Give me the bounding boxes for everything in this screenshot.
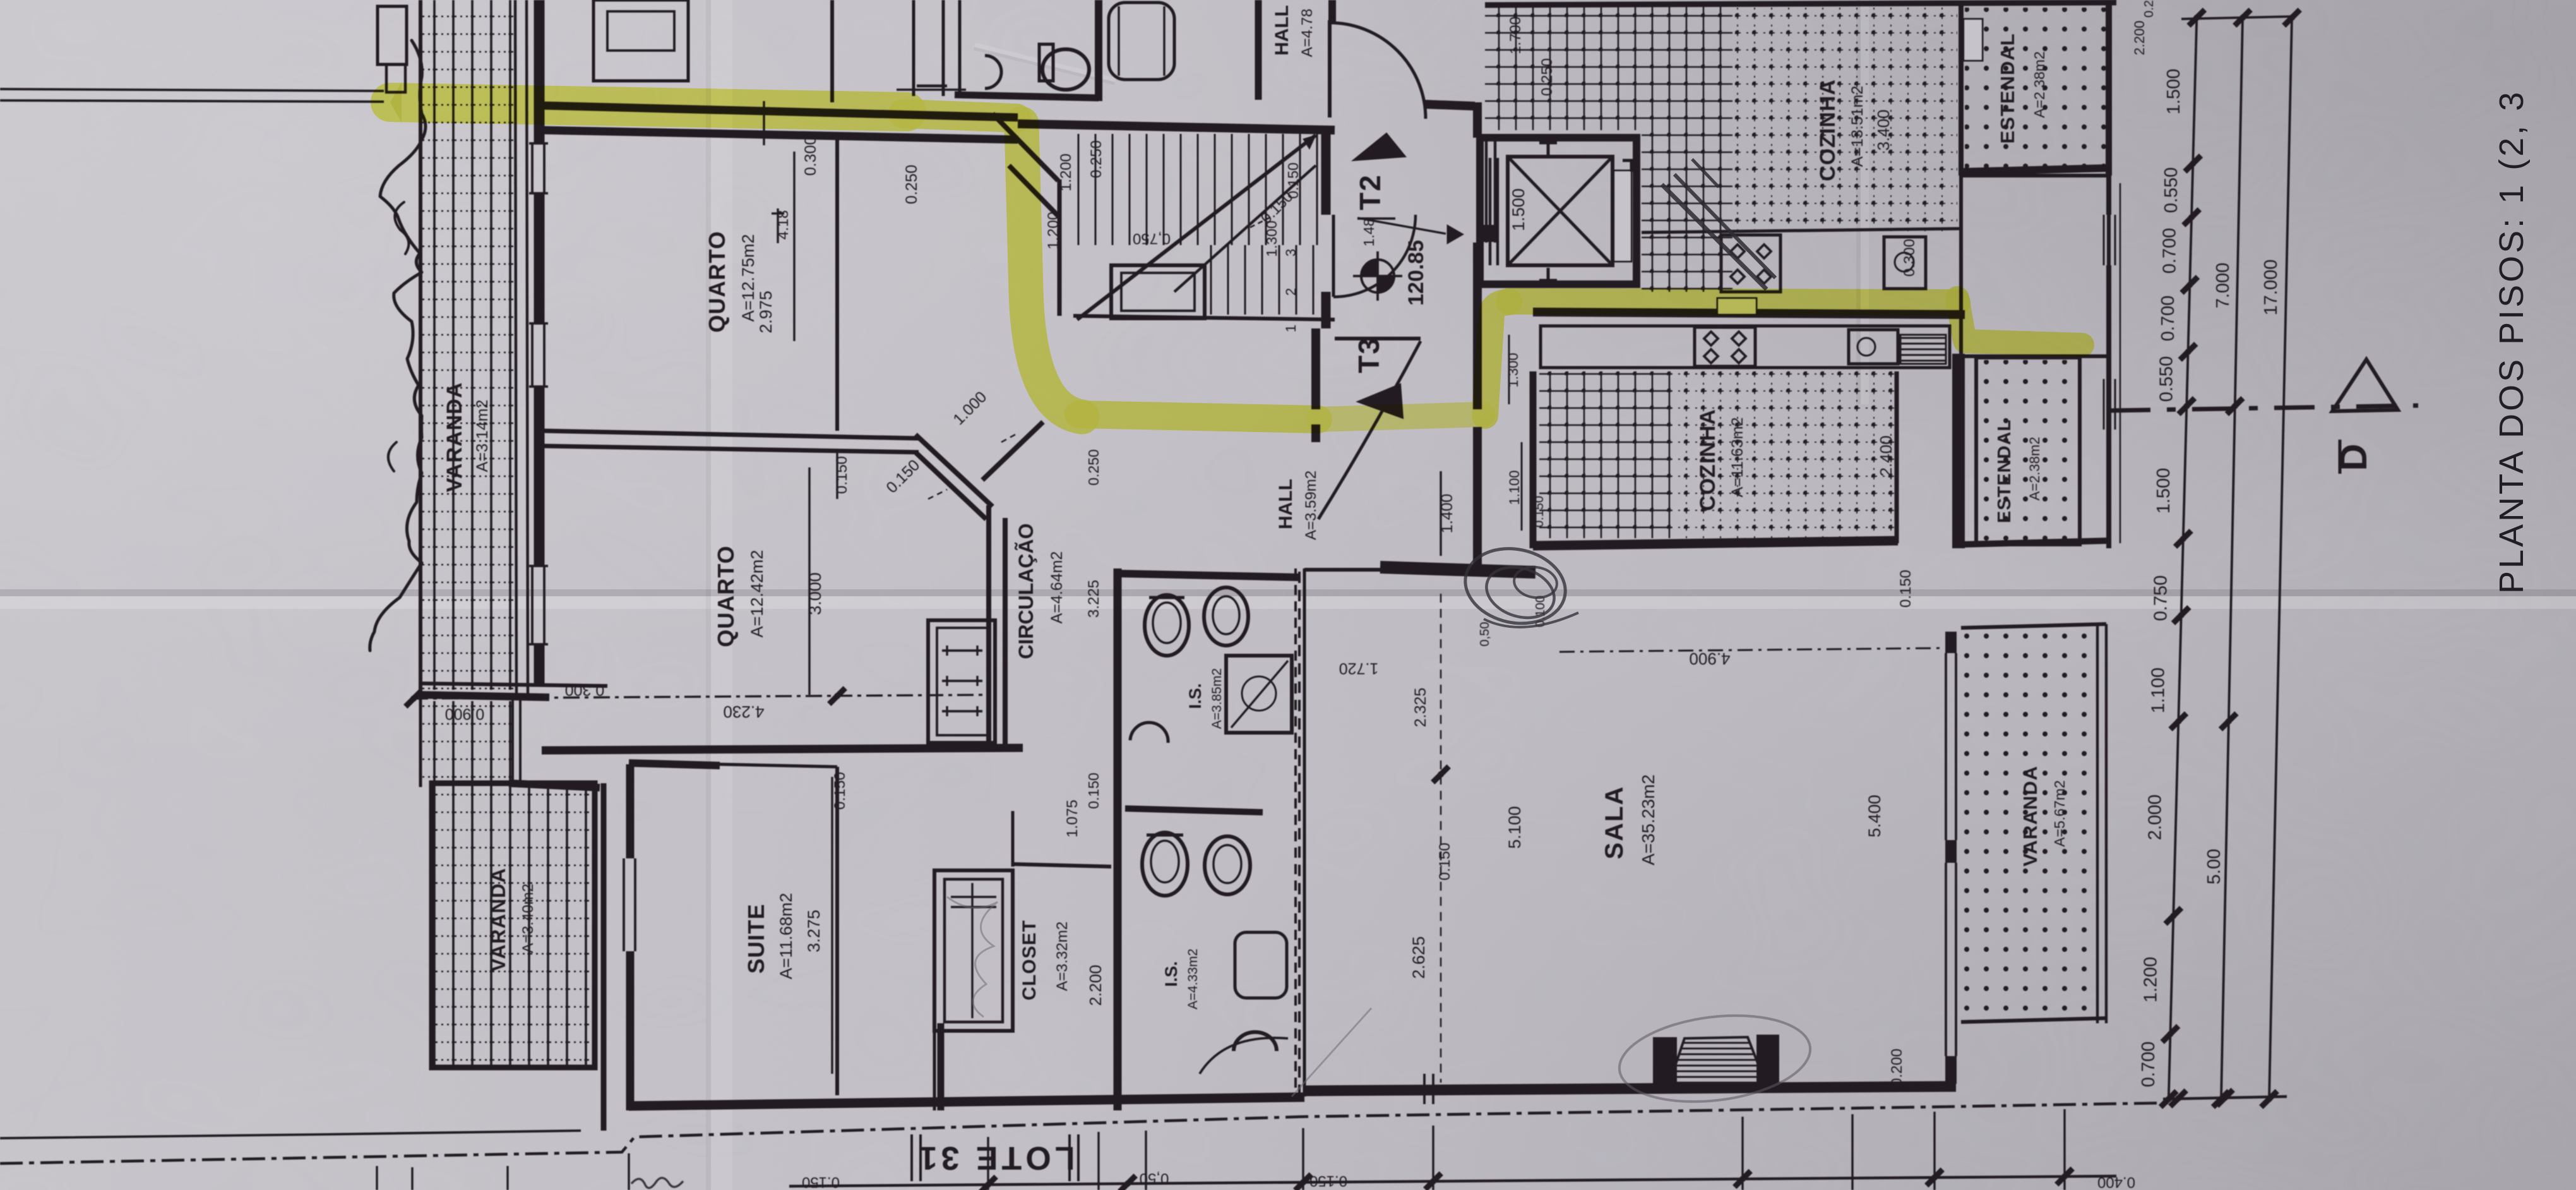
svg-text:A=11.63m2: A=11.63m2 bbox=[1729, 418, 1746, 498]
svg-text:A=13.51m2: A=13.51m2 bbox=[1849, 86, 1866, 167]
svg-text:0.250: 0.250 bbox=[1539, 58, 1556, 96]
svg-text:1.200: 1.200 bbox=[1058, 153, 1075, 191]
svg-text:PLANTA DOS PISOS: 1 (2, 3: PLANTA DOS PISOS: 1 (2, 3 bbox=[2493, 90, 2531, 594]
svg-text:A=4.78: A=4.78 bbox=[1299, 9, 1316, 57]
svg-text:0.300: 0.300 bbox=[565, 681, 605, 699]
svg-text:0.700: 0.700 bbox=[2138, 1042, 2159, 1088]
svg-text:QUARTO: QUARTO bbox=[713, 545, 739, 647]
svg-text:HALL: HALL bbox=[1275, 479, 1296, 529]
svg-text:2: 2 bbox=[1283, 288, 1299, 296]
svg-text:0.200: 0.200 bbox=[1888, 1049, 1905, 1086]
svg-text:2.325: 2.325 bbox=[1412, 688, 1429, 728]
svg-text:0.150: 0.150 bbox=[833, 456, 850, 494]
svg-text:2.975: 2.975 bbox=[756, 291, 775, 334]
svg-text:1.700: 1.700 bbox=[1507, 16, 1524, 54]
svg-text:2.625: 2.625 bbox=[1409, 936, 1428, 979]
svg-text:4.900: 4.900 bbox=[1689, 649, 1730, 668]
svg-text:0,750: 0,750 bbox=[1133, 230, 1171, 247]
svg-text:I.S.: I.S. bbox=[1162, 961, 1181, 987]
svg-text:1.200: 1.200 bbox=[1045, 212, 1062, 249]
svg-text:1.100: 1.100 bbox=[1506, 470, 1522, 505]
svg-text:1: 1 bbox=[1283, 325, 1299, 332]
svg-text:CIRCULAÇÃO: CIRCULAÇÃO bbox=[1015, 523, 1037, 659]
svg-text:ESTENDAL: ESTENDAL bbox=[1995, 419, 2015, 523]
svg-text:0.2: 0.2 bbox=[2142, 0, 2156, 18]
svg-text:0.700: 0.700 bbox=[2158, 296, 2178, 342]
svg-text:1.720: 1.720 bbox=[1339, 659, 1379, 677]
svg-text:3: 3 bbox=[1283, 249, 1299, 256]
svg-text:0.150: 0.150 bbox=[1897, 570, 1914, 608]
svg-text:I.S.: I.S. bbox=[1186, 683, 1205, 709]
svg-text:7.000: 7.000 bbox=[2213, 263, 2233, 309]
svg-text:1.300: 1.300 bbox=[1263, 220, 1280, 257]
svg-text:A=11.68m2: A=11.68m2 bbox=[777, 893, 796, 980]
svg-text:4.230: 4.230 bbox=[723, 702, 764, 721]
svg-text:0.900: 0.900 bbox=[445, 705, 485, 723]
svg-text:0.250: 0.250 bbox=[1085, 449, 1102, 486]
svg-text:ESTENDAL: ESTENDAL bbox=[1996, 33, 2018, 143]
svg-text:A=3.59m2: A=3.59m2 bbox=[1303, 471, 1320, 540]
svg-text:VARANDA: VARANDA bbox=[487, 868, 510, 972]
svg-text:0.300: 0.300 bbox=[1901, 239, 1918, 277]
svg-text:0.250: 0.250 bbox=[903, 165, 921, 205]
svg-text:A=3.32m2: A=3.32m2 bbox=[1054, 922, 1071, 991]
svg-text:0.550: 0.550 bbox=[2161, 167, 2181, 213]
svg-text:LOTE 31: LOTE 31 bbox=[915, 1139, 1075, 1176]
svg-text:QUARTO: QUARTO bbox=[704, 231, 730, 332]
svg-text:0.700: 0.700 bbox=[2160, 228, 2180, 274]
svg-text:COZINHA: COZINHA bbox=[1696, 409, 1720, 511]
svg-text:3.225: 3.225 bbox=[1085, 580, 1102, 618]
svg-text:A=35.23m2: A=35.23m2 bbox=[1638, 774, 1658, 865]
svg-text:A=3.14m2: A=3.14m2 bbox=[474, 400, 491, 472]
svg-text:1.075: 1.075 bbox=[1064, 800, 1081, 838]
svg-text:HALL: HALL bbox=[1272, 5, 1292, 56]
svg-text:A=5.67m2: A=5.67m2 bbox=[2051, 780, 2068, 847]
svg-text:CLOSET: CLOSET bbox=[1019, 920, 1040, 1001]
svg-text:A=4.64m2: A=4.64m2 bbox=[1048, 551, 1066, 624]
svg-text:3.275: 3.275 bbox=[804, 910, 823, 953]
svg-text:0.150: 0.150 bbox=[1436, 843, 1453, 880]
svg-text:0.400: 0.400 bbox=[2097, 1174, 2135, 1190]
svg-text:17.000: 17.000 bbox=[2261, 260, 2281, 316]
svg-text:5.100: 5.100 bbox=[1505, 806, 1524, 849]
svg-text:0.550: 0.550 bbox=[2156, 356, 2176, 402]
svg-text:0.150: 0.150 bbox=[1532, 496, 1546, 527]
svg-text:SALA: SALA bbox=[1601, 786, 1628, 860]
svg-text:2.200: 2.200 bbox=[1086, 965, 1105, 1006]
svg-text:3.400: 3.400 bbox=[1874, 109, 1893, 150]
svg-text:0,50: 0,50 bbox=[1478, 622, 1492, 647]
svg-text:1.500: 1.500 bbox=[2154, 468, 2174, 514]
svg-text:0.150: 0.150 bbox=[1309, 1172, 1347, 1189]
svg-text:0.150: 0.150 bbox=[832, 772, 849, 810]
svg-text:A=12.75m2: A=12.75m2 bbox=[739, 234, 758, 322]
svg-text:A=12.42m2: A=12.42m2 bbox=[748, 550, 766, 638]
svg-text:0.300: 0.300 bbox=[802, 136, 820, 176]
svg-text:A=3.40m2: A=3.40m2 bbox=[520, 884, 537, 953]
svg-text:0.150: 0.150 bbox=[1085, 772, 1102, 809]
svg-text:COZINHA: COZINHA bbox=[1816, 79, 1840, 181]
svg-text:5.400: 5.400 bbox=[1865, 795, 1884, 838]
svg-text:VARANDA: VARANDA bbox=[443, 382, 467, 492]
svg-text:1.100: 1.100 bbox=[2149, 668, 2169, 714]
svg-text:1.48: 1.48 bbox=[1361, 219, 1377, 247]
svg-text:120.85: 120.85 bbox=[1404, 240, 1428, 306]
svg-text:A=2.38m2: A=2.38m2 bbox=[2031, 51, 2048, 118]
svg-text:A=3.85m2: A=3.85m2 bbox=[1210, 668, 1224, 729]
svg-text:A=2.38m2: A=2.38m2 bbox=[2027, 437, 2042, 501]
svg-text:5.00: 5.00 bbox=[2204, 849, 2224, 884]
svg-text:0.250: 0.250 bbox=[1088, 140, 1105, 178]
svg-text:SUITE: SUITE bbox=[743, 903, 769, 973]
svg-text:2.400: 2.400 bbox=[1876, 435, 1895, 476]
svg-text:VARANDA: VARANDA bbox=[2019, 766, 2041, 867]
svg-text:1.500: 1.500 bbox=[2164, 69, 2184, 115]
svg-text:2.200: 2.200 bbox=[2132, 20, 2147, 55]
svg-text:A=4.33m2: A=4.33m2 bbox=[1186, 949, 1200, 1009]
svg-text:T3: T3 bbox=[1352, 337, 1385, 373]
svg-text:0.150: 0.150 bbox=[802, 1174, 840, 1190]
svg-text:0.750: 0.750 bbox=[2150, 575, 2171, 622]
svg-text:0,50: 0,50 bbox=[1140, 1170, 1169, 1187]
svg-text:T2: T2 bbox=[1354, 174, 1386, 210]
svg-text:1.300: 1.300 bbox=[1505, 352, 1521, 387]
svg-text:1.500: 1.500 bbox=[1509, 188, 1528, 231]
svg-text:2.000: 2.000 bbox=[2145, 795, 2165, 841]
svg-text:1.200: 1.200 bbox=[2141, 957, 2161, 1003]
